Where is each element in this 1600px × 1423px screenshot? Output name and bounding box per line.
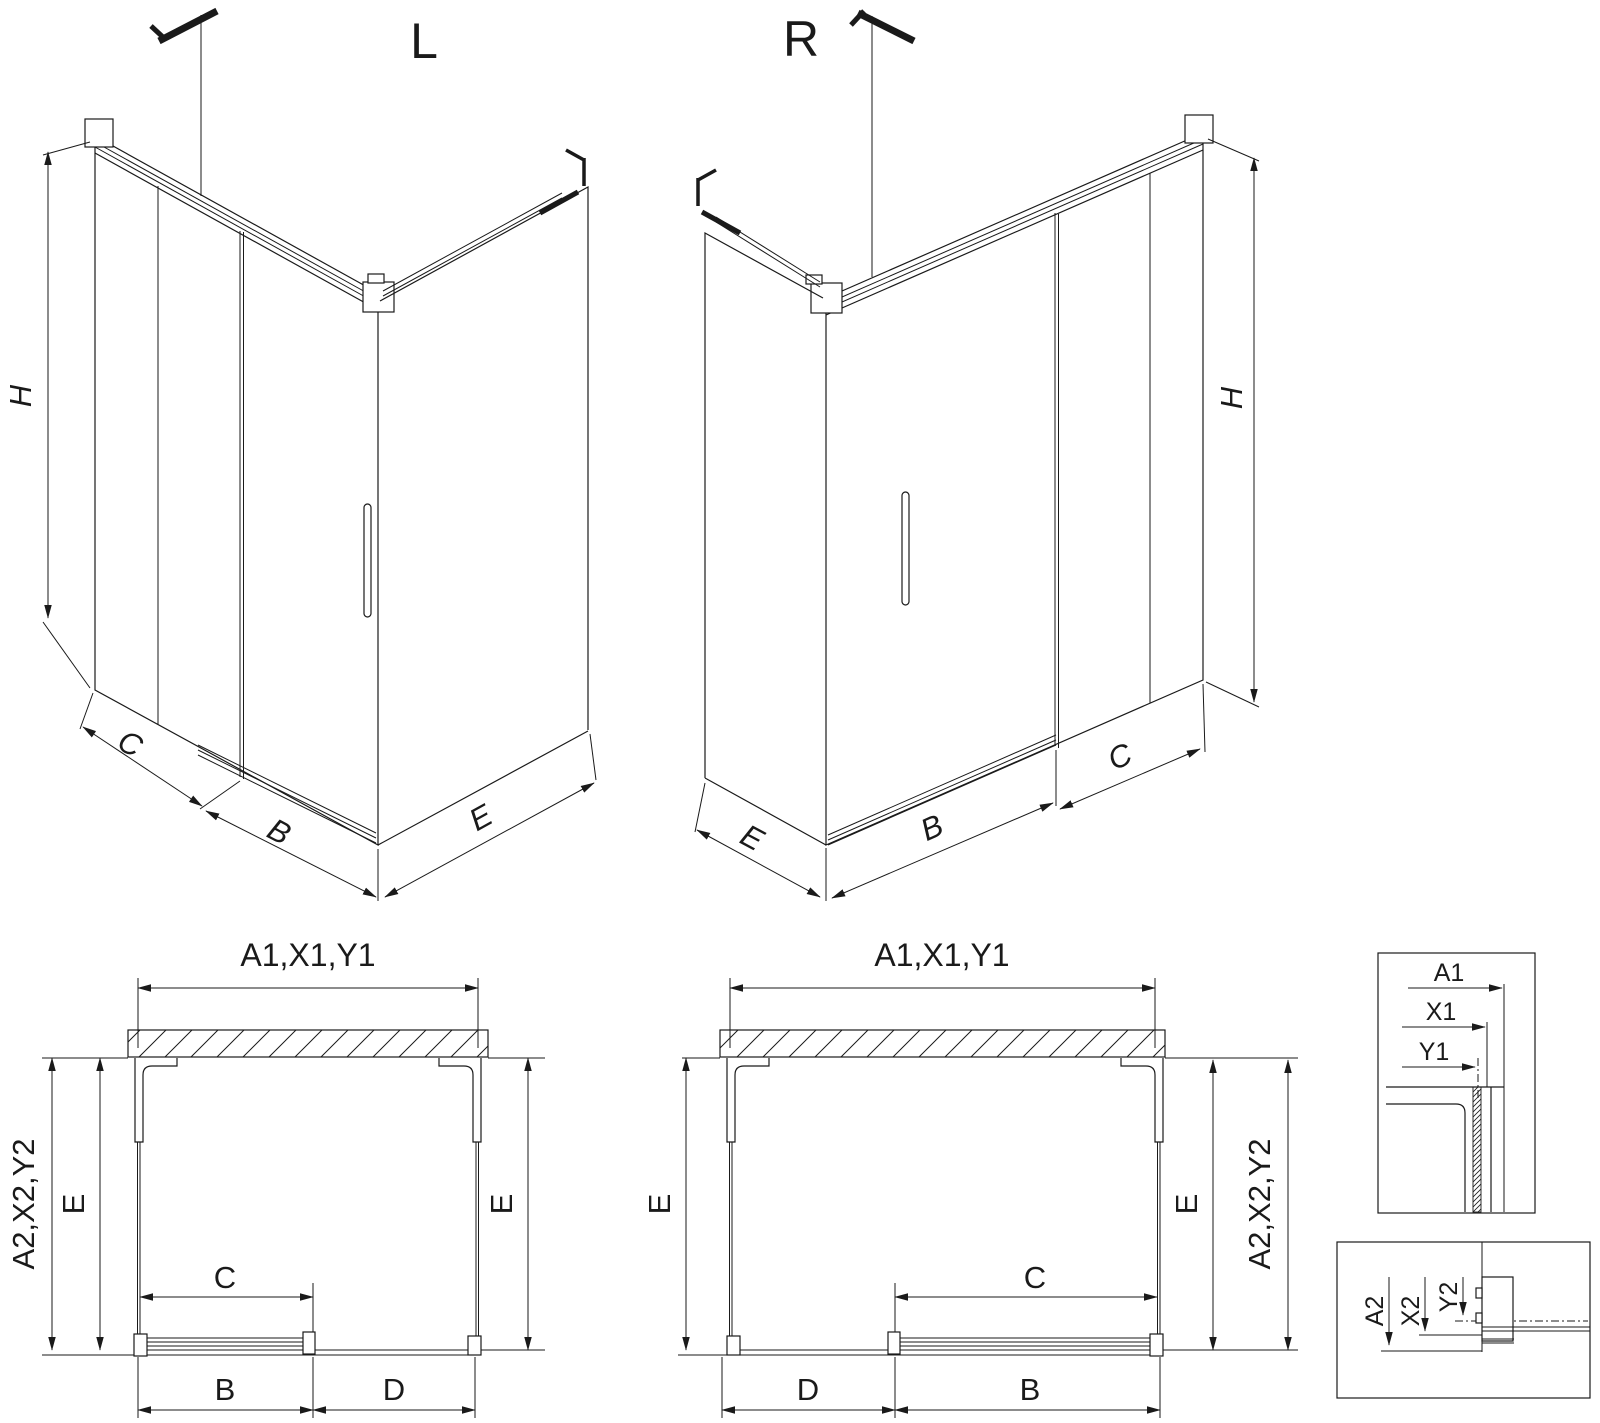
- dim-label-c: C: [1024, 1260, 1046, 1295]
- dim-label-y2: Y2: [1435, 1282, 1463, 1313]
- dim-label-y1: Y1: [1419, 1038, 1450, 1066]
- dim-label-x2: X2: [1397, 1296, 1425, 1327]
- door-stop: [888, 1332, 900, 1354]
- wall-bracket-left: [85, 119, 113, 147]
- wall-section: [128, 1030, 488, 1057]
- dim-label-a2x2y2: A2,X2,Y2: [6, 1139, 41, 1270]
- dim-label-e-right: E: [1169, 1194, 1204, 1215]
- dim-label-b: B: [1020, 1372, 1041, 1407]
- wall-section: [720, 1030, 1165, 1057]
- shower-enclosure-technical-drawing: L: [0, 0, 1600, 1423]
- door-handle: [902, 492, 909, 605]
- dim-label-e-left: E: [56, 1194, 91, 1215]
- dim-label-e-left: E: [642, 1194, 677, 1215]
- dim-label-x1: X1: [1426, 998, 1457, 1026]
- dim-label-h: H: [3, 384, 38, 407]
- wall-bracket-right: [1185, 115, 1213, 143]
- dim-label-a2: A2: [1361, 1296, 1389, 1327]
- page: L: [0, 0, 1600, 1423]
- dim-label-b: B: [215, 1372, 236, 1407]
- iso-left-title: L: [410, 13, 438, 69]
- dim-label-a2x2y2: A2,X2,Y2: [1242, 1139, 1277, 1270]
- dim-label-a1: A1: [1434, 959, 1465, 987]
- door-handle: [364, 504, 371, 617]
- dim-label-a1x1y1: A1,X1,Y1: [240, 937, 375, 973]
- dim-label-c: C: [214, 1260, 236, 1295]
- dim-label-d: D: [383, 1372, 405, 1407]
- iso-right-title: R: [783, 11, 819, 67]
- dim-label-h: H: [1214, 386, 1249, 409]
- dim-label-a1x1y1: A1,X1,Y1: [874, 937, 1009, 973]
- dim-label-d: D: [797, 1372, 819, 1407]
- glass-panel-section: [1473, 1087, 1481, 1212]
- dim-label-e-right: E: [484, 1194, 519, 1215]
- door-stop: [303, 1332, 315, 1354]
